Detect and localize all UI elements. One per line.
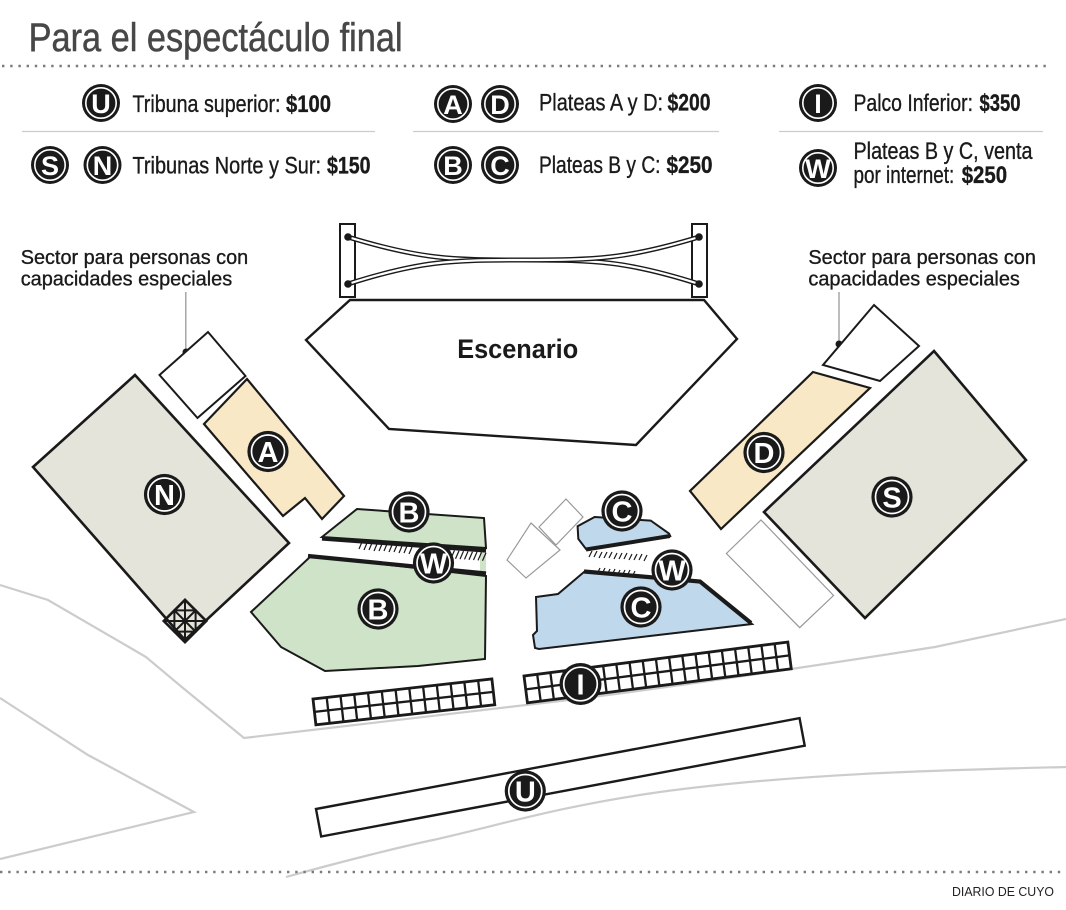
svg-text:S: S — [882, 482, 901, 514]
svg-text:$150: $150 — [327, 153, 371, 180]
svg-text:Plateas B y C:: Plateas B y C: — [539, 152, 661, 179]
svg-text:A: A — [443, 90, 463, 120]
svg-text:W: W — [658, 555, 686, 587]
svg-text:C: C — [490, 151, 510, 181]
svg-text:A: A — [258, 437, 279, 469]
svg-text:D: D — [490, 90, 510, 120]
svg-text:D: D — [754, 438, 775, 470]
svg-text:W: W — [420, 548, 448, 580]
svg-text:I: I — [814, 89, 822, 119]
svg-text:$250: $250 — [667, 152, 713, 179]
svg-text:B: B — [443, 151, 463, 181]
svg-text:N: N — [154, 480, 175, 512]
svg-text:Escenario: Escenario — [457, 334, 578, 364]
svg-text:B: B — [368, 594, 389, 626]
svg-text:capacidades especiales: capacidades especiales — [808, 269, 1020, 291]
svg-text:Tribunas Norte y Sur:: Tribunas Norte y Sur: — [133, 153, 322, 180]
svg-text:$250: $250 — [962, 162, 1007, 189]
svg-text:Plateas B y C, venta: Plateas B y C, venta — [854, 138, 1034, 165]
svg-text:S: S — [41, 151, 59, 181]
svg-text:W: W — [805, 154, 831, 184]
svg-text:DIARIO DE CUYO: DIARIO DE CUYO — [952, 884, 1054, 899]
svg-text:B: B — [399, 497, 420, 529]
svg-text:I: I — [576, 669, 584, 701]
svg-text:$200: $200 — [668, 90, 711, 117]
svg-text:Para el espectáculo final: Para el espectáculo final — [29, 16, 403, 60]
svg-text:$350: $350 — [980, 90, 1021, 117]
svg-text:C: C — [631, 592, 652, 624]
svg-text:N: N — [93, 151, 113, 181]
svg-text:$100: $100 — [286, 91, 331, 118]
svg-text:Plateas A y D:: Plateas A y D: — [539, 90, 663, 117]
svg-text:capacidades especiales: capacidades especiales — [21, 269, 233, 291]
svg-text:U: U — [515, 776, 536, 808]
svg-text:por internet:: por internet: — [854, 162, 955, 189]
svg-text:U: U — [91, 89, 111, 119]
svg-text:Tribuna superior:: Tribuna superior: — [133, 91, 281, 118]
svg-text:Sector para personas con: Sector para personas con — [21, 247, 249, 269]
svg-text:Palco Inferior:: Palco Inferior: — [854, 90, 974, 117]
svg-text:Sector para personas con: Sector para personas con — [808, 247, 1036, 269]
svg-text:C: C — [612, 496, 633, 528]
